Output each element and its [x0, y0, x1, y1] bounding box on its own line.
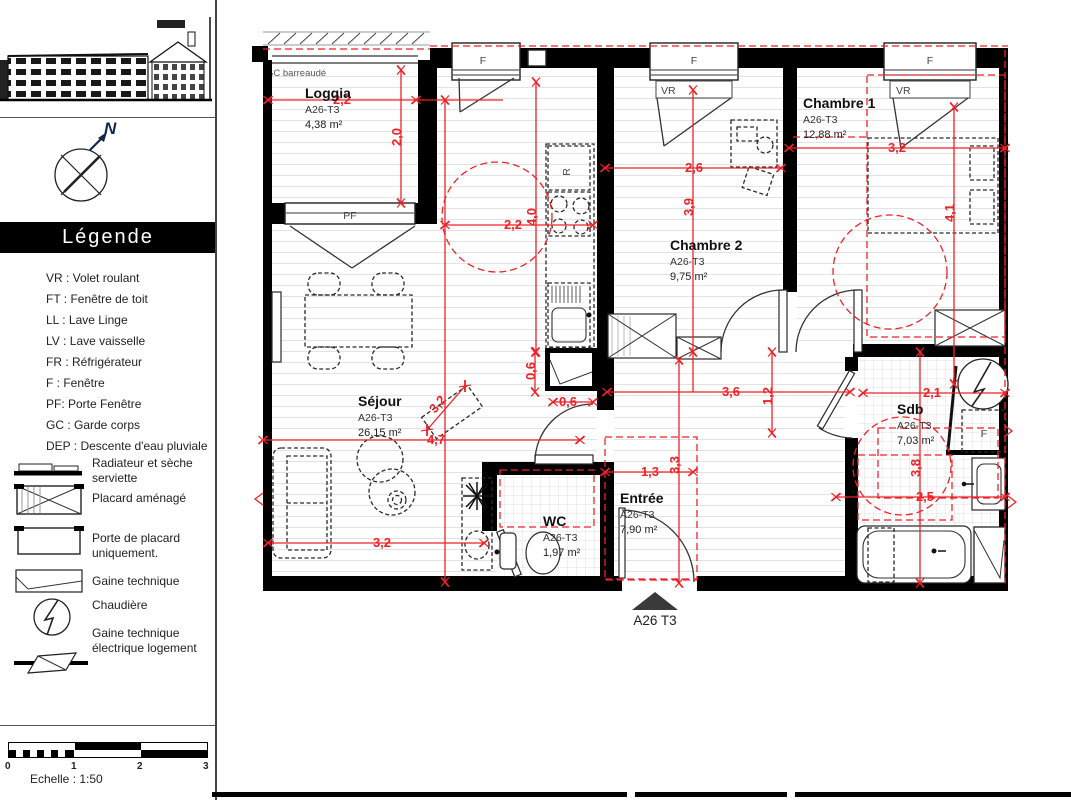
dim-sejour-width: 4,7 — [427, 432, 445, 447]
window-vr-label: VR — [661, 85, 676, 97]
room-label-loggia: Loggia — [305, 85, 351, 101]
dim-kitchen-height: 4,0 — [524, 208, 539, 226]
closet-chambre2-hall — [608, 314, 676, 358]
dim-sdb-height: 3,8 — [908, 459, 923, 477]
room-label-wc: WC — [543, 513, 566, 529]
window-vr-label: VR — [896, 85, 911, 97]
dim-chambre2-width: 2,6 — [685, 160, 703, 175]
dim-hall-width: 3,6 — [722, 384, 740, 399]
room-code-chambre1: A26-T3 — [803, 114, 838, 126]
pf-label: PF — [343, 210, 356, 222]
room-area-sejour: 26,15 m² — [358, 427, 402, 439]
floor-plan-drawing: GC barreaudé — [0, 0, 1071, 800]
dim-entree-width: 1,3 — [641, 464, 659, 479]
room-label-sdb: Sdb — [897, 401, 923, 417]
room-code-sdb: A26-T3 — [897, 420, 932, 432]
room-code-chambre2: A26-T3 — [670, 256, 705, 268]
room-code-loggia: A26-T3 — [305, 104, 340, 116]
room-code-wc: A26-T3 — [543, 532, 578, 544]
dim-sejour-bottom: 3,2 — [373, 535, 391, 550]
dim-kitchen-width: 2,2 — [504, 217, 522, 232]
dim-chambre1-depth: 4,1 — [942, 204, 957, 222]
boiler — [958, 359, 1008, 409]
dim-sdb-width: 2,1 — [923, 385, 941, 400]
closet-hall-small — [677, 337, 721, 359]
room-area-sdb: 7,03 m² — [897, 435, 935, 447]
dim-entree-height: 3,3 — [667, 456, 682, 474]
room-code-sejour: A26-T3 — [358, 412, 393, 424]
closet-chambre1 — [935, 310, 1005, 346]
duct-niche — [550, 353, 592, 386]
room-area-chambre1: 12,88 m² — [803, 129, 847, 141]
gc-barreaude-label: GC barreaudé — [266, 68, 326, 79]
unit-label: A26 T3 — [633, 613, 676, 628]
dim-chambre2-depth: 3,9 — [681, 198, 696, 216]
window-f-label: F — [480, 55, 486, 67]
room-area-wc: 1,97 m² — [543, 547, 581, 559]
dim-chambre1-width: 3,2 — [888, 140, 906, 155]
dim-loggia-depth: 2,0 — [389, 128, 404, 146]
radiator-sejour — [272, 292, 281, 362]
f-box-label: F — [981, 428, 987, 440]
floor-plan-sheet: N Légende VR : Volet roulant FT : Fenêtr… — [0, 0, 1071, 800]
room-label-entree: Entrée — [620, 490, 664, 506]
room-area-chambre2: 9,75 m² — [670, 271, 708, 283]
room-area-entree: 7,90 m² — [620, 524, 658, 536]
duct-bottom-right — [974, 527, 1005, 583]
bathtub — [857, 526, 971, 583]
room-label-chambre1: Chambre 1 — [803, 95, 876, 111]
room-label-sejour: Séjour — [358, 393, 402, 409]
entrance-marker: A26 T3 — [632, 592, 678, 628]
dim-sdb-width2: 2,5 — [916, 489, 934, 504]
room-area-loggia: 4,38 m² — [305, 119, 343, 131]
balcony-above-hatch — [252, 32, 430, 63]
dim-niche-width: 0,6 — [559, 394, 577, 409]
dim-hall-height: 1,2 — [760, 387, 775, 405]
room-label-chambre2: Chambre 2 — [670, 237, 743, 253]
room-code-entree: A26-T3 — [620, 509, 655, 521]
dim-niche-height: 0,6 — [523, 362, 538, 380]
dep-box — [528, 50, 546, 66]
window-f-label: F — [691, 55, 697, 67]
window-f-label: F — [927, 55, 933, 67]
fridge-label: R — [561, 168, 573, 176]
